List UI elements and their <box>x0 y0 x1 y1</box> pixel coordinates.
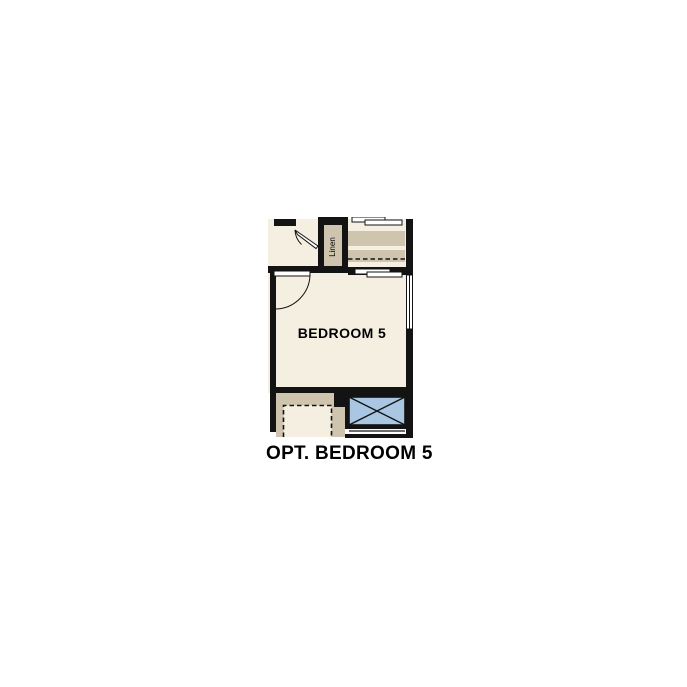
wall-bottom-edge <box>345 434 413 438</box>
optional-dashed-outline <box>284 406 332 438</box>
door-leaf <box>274 271 310 276</box>
shelf-top <box>348 231 405 246</box>
shelf-bottom <box>348 250 405 262</box>
plan-caption: OPT. BEDROOM 5 <box>266 443 424 465</box>
wall-linen-left <box>318 217 324 273</box>
optional-casework-strip <box>334 407 345 437</box>
wall-linen-right <box>342 217 348 273</box>
floor-plan: Linen <box>266 217 424 465</box>
bypass-panel <box>367 272 402 277</box>
wall-left <box>270 269 276 432</box>
wall-middle-chunk <box>334 393 345 407</box>
window-right-wall <box>407 275 413 329</box>
bypass-panel <box>365 220 402 225</box>
linen-closet: Linen <box>324 225 342 267</box>
wall-top-stub <box>274 219 296 226</box>
linen-closet-label: Linen <box>328 237 337 257</box>
wall-linen-top <box>318 217 348 225</box>
floor-plan-drawing: Linen <box>268 217 422 439</box>
wall-bedroom-bottom <box>270 387 413 393</box>
bedroom-label: BEDROOM 5 <box>298 325 386 341</box>
